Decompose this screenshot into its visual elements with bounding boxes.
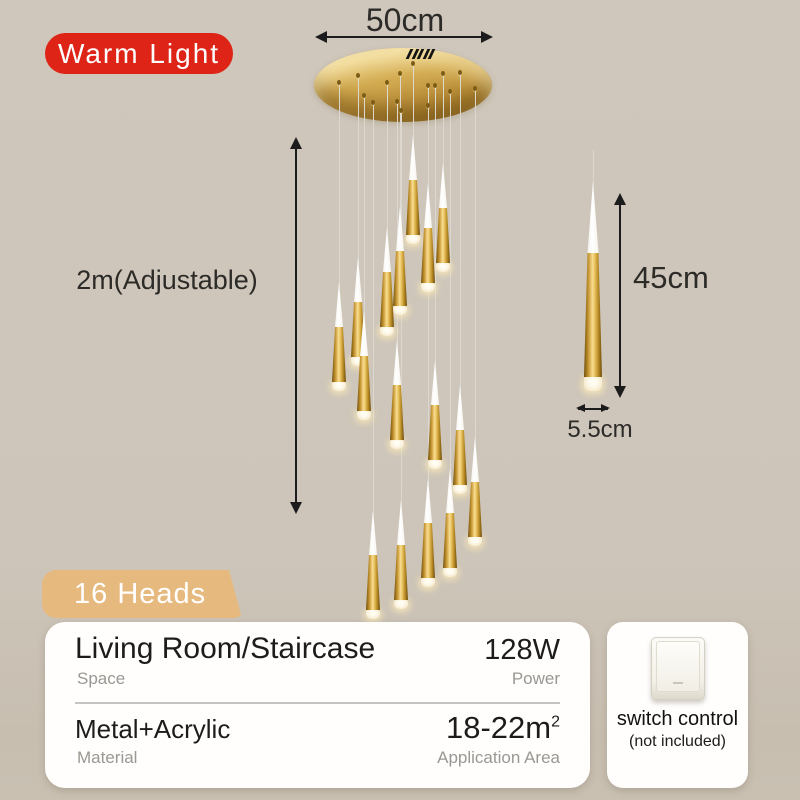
arrow-right-icon [481, 31, 493, 43]
pendant-light-cap [390, 440, 404, 449]
canopy-anchor-dot [458, 70, 462, 75]
pendant-light-cap [394, 600, 408, 609]
pendant [390, 340, 404, 449]
spec-material-label: Material [77, 748, 137, 768]
pendant [380, 227, 394, 336]
pendant-light-cap [584, 377, 602, 391]
pendant-gold-cone [584, 253, 602, 377]
pendant-acrylic-tip [436, 163, 450, 208]
pendant-gold-cone [332, 327, 346, 382]
pendant-light-cap [380, 327, 394, 336]
pendant-height-label: 45cm [633, 260, 709, 296]
pendant [468, 437, 482, 546]
canopy-anchor-dot [337, 80, 341, 85]
cable-length-label: 2m(Adjustable) [52, 265, 282, 296]
pendant [443, 468, 457, 577]
superscript-2: 2 [551, 714, 560, 731]
pendant [357, 311, 371, 420]
canopy-vent-icon [408, 49, 433, 59]
pendant-acrylic-tip [357, 311, 371, 356]
pendant-wire [450, 91, 451, 474]
switch-note-line2: (not included) [607, 733, 748, 751]
pendant-light-cap [393, 306, 407, 315]
spec-power-label: Power [512, 669, 560, 689]
heads-count-text: 16 Heads [74, 570, 206, 618]
canopy-anchor-dot [426, 103, 430, 108]
arrow-line [619, 195, 621, 396]
pendant-diameter-label: 5.5cm [555, 416, 645, 444]
canopy-anchor-dot [385, 80, 389, 85]
pendant-wire [475, 88, 476, 443]
pendant-gold-cone [443, 513, 457, 568]
pendant-diameter-arrow [576, 404, 610, 414]
pendant [406, 135, 420, 244]
pendant-acrylic-tip [351, 257, 365, 302]
pendant-gold-cone [393, 251, 407, 306]
arrow-line [295, 139, 297, 512]
canopy-anchor-dot [395, 99, 399, 104]
arrow-down-icon [614, 386, 626, 398]
cable-length-arrow [290, 137, 302, 514]
pendant [436, 163, 450, 272]
pendant-light-cap [443, 568, 457, 577]
pendant [421, 183, 435, 292]
pendant-gold-cone [436, 208, 450, 263]
pendant-light-cap [357, 411, 371, 420]
pendant [332, 282, 346, 391]
pendant-gold-cone [428, 405, 442, 460]
spec-material-value: Metal+Acrylic [75, 714, 230, 745]
spec-divider [75, 702, 560, 704]
product-infographic: 50cm Warm Light 2m(Adjustable) 45cm 5.5c… [0, 0, 800, 800]
pendant-wire [387, 82, 388, 233]
pendant-acrylic-tip [366, 510, 380, 555]
pendant-acrylic-tip [453, 385, 467, 430]
pendant-gold-cone [406, 180, 420, 235]
pendant-wire [339, 82, 340, 288]
canopy-anchor-dot [411, 61, 415, 66]
pendant-gold-cone [366, 555, 380, 610]
pendant-gold-cone [421, 228, 435, 283]
pendant-wire [413, 63, 414, 141]
pendant [428, 360, 442, 469]
pendant-light-cap [421, 283, 435, 292]
pendant-acrylic-tip [390, 340, 404, 385]
pendant-acrylic-tip [584, 181, 602, 253]
pendant-gold-cone [421, 523, 435, 578]
spec-area-value: 18-22m2 [446, 710, 560, 746]
canopy-anchor-dot [399, 108, 403, 113]
pendant-acrylic-tip [428, 360, 442, 405]
pendant-light-cap [332, 382, 346, 391]
pendant-light-cap [436, 263, 450, 272]
switch-panel: switch control (not included) [607, 622, 748, 788]
pendant-acrylic-tip [421, 478, 435, 523]
pendant-acrylic-tip [421, 183, 435, 228]
pendant-wire [460, 72, 461, 391]
pendant-gold-cone [394, 545, 408, 600]
pendant-acrylic-tip [380, 227, 394, 272]
switch-note-line1: switch control [607, 708, 748, 731]
pendant-gold-cone [380, 272, 394, 327]
pendant-height-arrow [614, 193, 626, 398]
spec-panel: Living Room/Staircase Space 128W Power M… [45, 622, 590, 788]
pendant-gold-cone [468, 482, 482, 537]
canopy-anchor-dot [441, 71, 445, 76]
spec-space-label: Space [77, 669, 125, 689]
wall-switch-icon [651, 637, 705, 700]
pendant [421, 478, 435, 587]
arrow-line [317, 36, 491, 38]
spec-space-value: Living Room/Staircase [75, 632, 375, 666]
canopy-anchor-dot [398, 71, 402, 76]
spec-area-label: Application Area [437, 748, 560, 768]
arrow-down-icon [290, 502, 302, 514]
pendant-light-cap [468, 537, 482, 546]
canopy-width-arrow [315, 31, 493, 43]
pendant-acrylic-tip [468, 437, 482, 482]
pendant [584, 181, 602, 391]
heads-count-badge: 16 Heads [42, 570, 247, 618]
pendant [394, 500, 408, 609]
warm-light-badge: Warm Light [45, 33, 233, 74]
canopy-anchor-dot [473, 86, 477, 91]
canopy-anchor-dot [448, 89, 452, 94]
pendant-light-cap [406, 235, 420, 244]
canopy-anchor-dot [433, 83, 437, 88]
canopy-anchor-dot [362, 93, 366, 98]
pendant-acrylic-tip [393, 206, 407, 251]
pendant-wire [443, 73, 444, 169]
pendant-acrylic-tip [443, 468, 457, 513]
pendant-gold-cone [357, 356, 371, 411]
canopy-anchor-dot [426, 83, 430, 88]
pendant [393, 206, 407, 315]
pendant-light-cap [366, 610, 380, 619]
spec-power-value: 128W [484, 634, 560, 667]
ceiling-canopy [314, 48, 492, 122]
pendant-wire [373, 102, 374, 516]
pendant-wire [358, 75, 359, 263]
pendant [366, 510, 380, 619]
pendant-acrylic-tip [394, 500, 408, 545]
canopy-anchor-dot [356, 73, 360, 78]
arrow-right-icon [601, 404, 610, 412]
pendant-acrylic-tip [332, 282, 346, 327]
pendant-acrylic-tip [406, 135, 420, 180]
pendant-light-cap [428, 460, 442, 469]
pendant-gold-cone [390, 385, 404, 440]
pendant-light-cap [421, 578, 435, 587]
canopy-anchor-dot [371, 100, 375, 105]
